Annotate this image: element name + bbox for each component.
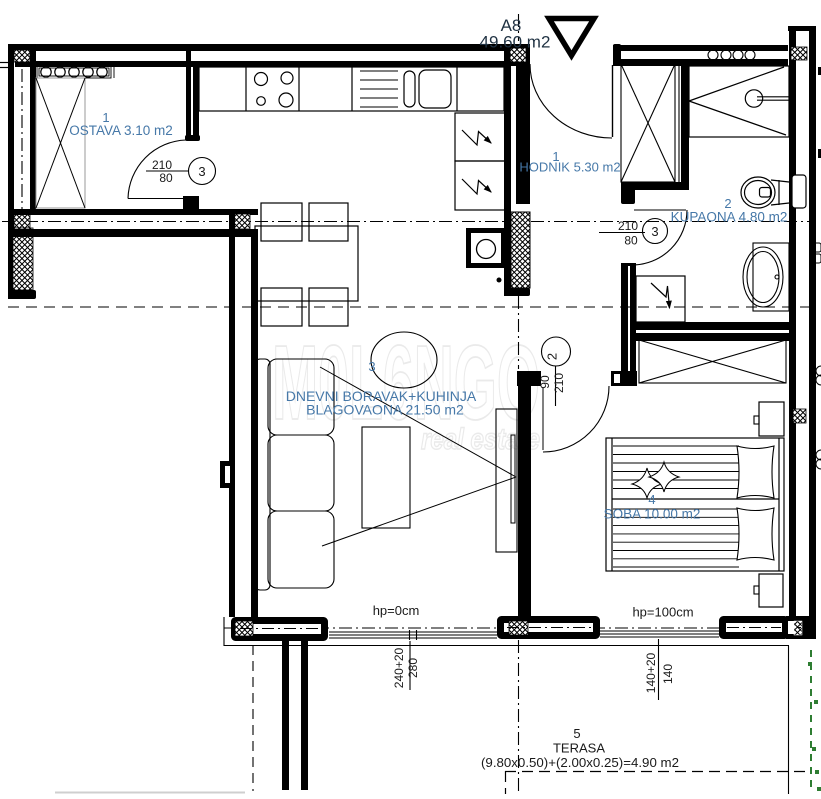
svg-text:TERASA: TERASA: [553, 741, 605, 756]
svg-text:80: 80: [624, 234, 638, 248]
svg-text:OSTAVA 3.10 m2: OSTAVA 3.10 m2: [69, 123, 173, 138]
svg-text:90: 90: [538, 375, 552, 389]
svg-text:3: 3: [651, 224, 658, 239]
svg-text:280: 280: [406, 658, 420, 678]
svg-text:210: 210: [152, 158, 172, 172]
svg-text:KUPAONA 4.80 m2: KUPAONA 4.80 m2: [671, 210, 788, 225]
svg-text:4: 4: [648, 492, 655, 507]
svg-text:hp=100cm: hp=100cm: [632, 605, 693, 620]
svg-text:3: 3: [198, 164, 205, 179]
svg-text:49.60 m2: 49.60 m2: [480, 33, 551, 52]
svg-text:210: 210: [618, 219, 638, 233]
svg-text:hp=0cm: hp=0cm: [373, 603, 420, 618]
svg-text:SOBA 10.00 m2: SOBA 10.00 m2: [604, 507, 701, 522]
svg-text:BLAGOVAONA 21.50 m2: BLAGOVAONA 21.50 m2: [306, 402, 464, 418]
svg-text:3: 3: [368, 359, 375, 374]
svg-text:140: 140: [661, 664, 675, 684]
svg-text:80: 80: [159, 171, 173, 185]
svg-text:5: 5: [573, 726, 580, 741]
svg-text:2: 2: [545, 353, 560, 360]
svg-text:240+20: 240+20: [392, 647, 406, 688]
svg-text:(9.80x0.50)+(2.00x0.25)=4.90 m: (9.80x0.50)+(2.00x0.25)=4.90 m2: [481, 756, 679, 770]
svg-text:210: 210: [552, 373, 566, 393]
svg-text:HODNIK 5.30 m2: HODNIK 5.30 m2: [519, 160, 620, 175]
svg-text:140+20: 140+20: [644, 652, 658, 693]
